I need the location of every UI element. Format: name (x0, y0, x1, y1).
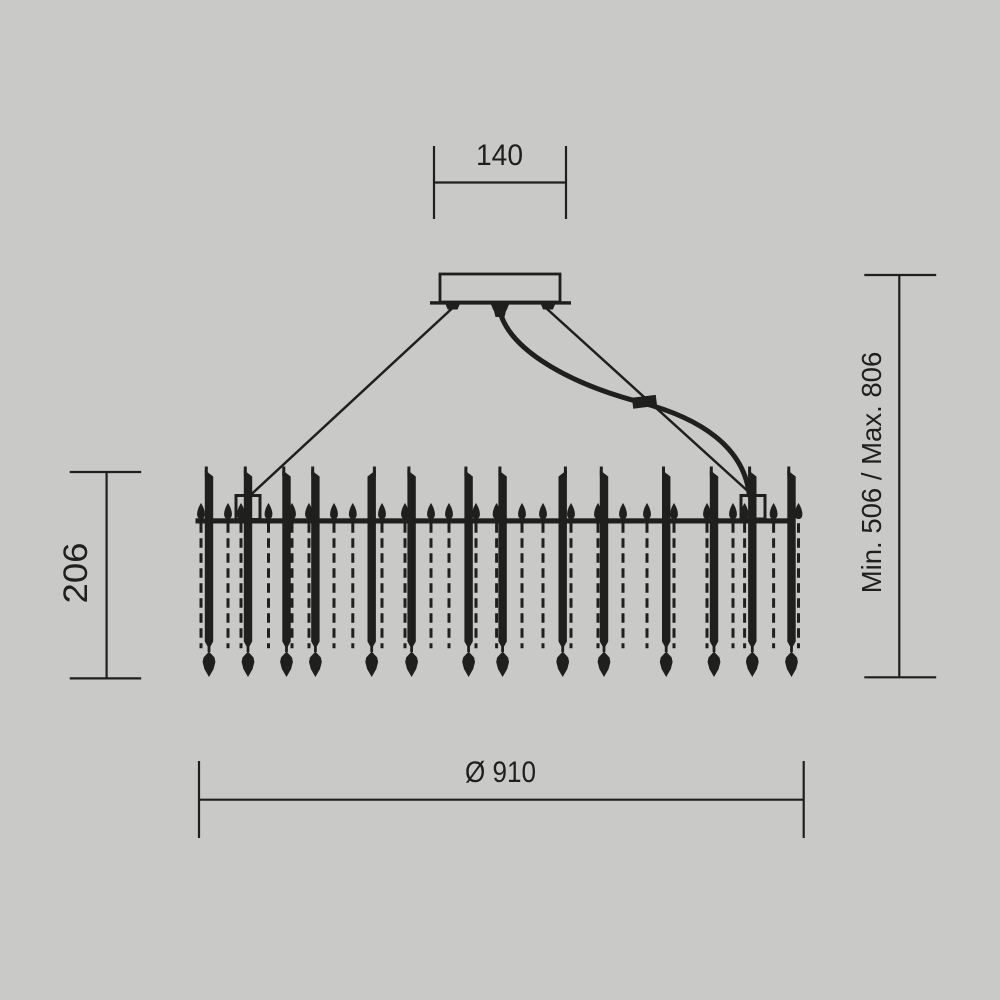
svg-text:206: 206 (57, 543, 95, 604)
svg-text:Min. 506 / Max. 806: Min. 506 / Max. 806 (856, 352, 887, 594)
svg-text:Ø 910: Ø 910 (465, 756, 536, 789)
svg-text:140: 140 (476, 139, 523, 172)
